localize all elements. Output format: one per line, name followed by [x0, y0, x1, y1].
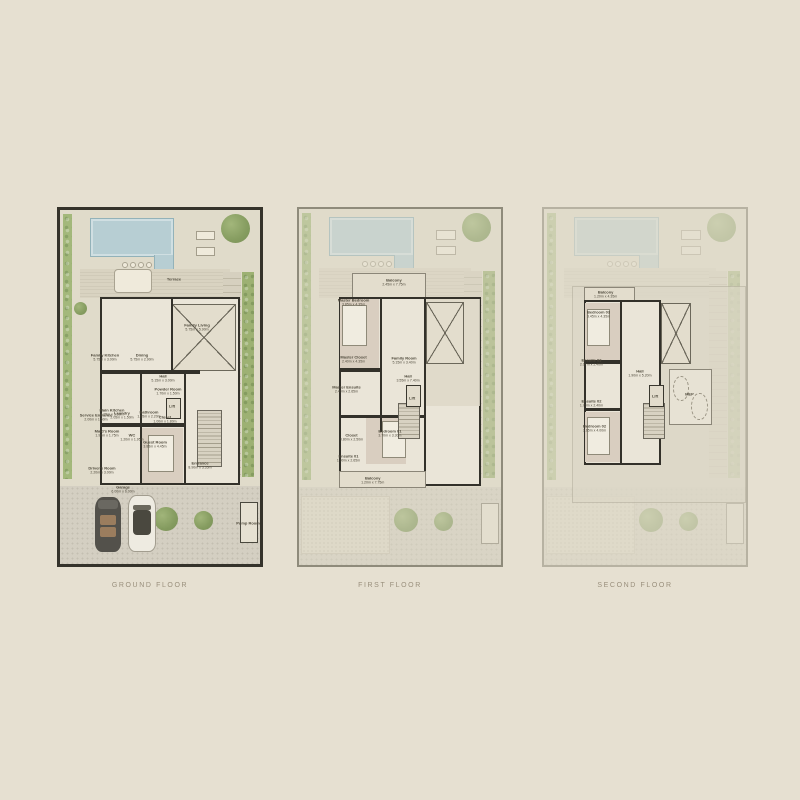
- room-label: WC1.20m x 1.95m: [120, 432, 143, 441]
- room-label: Bathroom1.95m x 2.20m: [137, 409, 160, 418]
- room-label: Bedroom 013.70m x 3.30m: [378, 429, 401, 438]
- room-label: Closet0.80m x 2.50m: [340, 432, 363, 441]
- room-label: Terrace: [167, 277, 181, 282]
- room-label: MEP: [685, 392, 694, 397]
- plot-boundary: Balcony1.20m x 4.35mBedroom 033.45m x 4.…: [542, 207, 748, 567]
- room-label: Laundry2.05m x 1.50m: [110, 411, 133, 420]
- room-label: Family Room5.15m x 3.40m: [391, 356, 416, 365]
- room-labels: Balcony2.45m x 7.75mMaster Bedroom3.85m …: [299, 209, 501, 565]
- room-label: Ensuite 021.70m x 2.40m: [580, 398, 603, 407]
- room-label: Hall3.55m x 7.40m: [397, 374, 420, 383]
- second-floor-plan: Balcony1.20m x 4.35mBedroom 033.45m x 4.…: [542, 207, 748, 567]
- room-label: Master Ensuite2.40m x 2.65m: [332, 384, 360, 393]
- room-label: Balcony1.20m x 4.35m: [594, 290, 617, 299]
- room-label: Hall1.90m x 5.20m: [628, 368, 651, 377]
- room-label: Balcony2.45m x 7.75m: [382, 277, 405, 286]
- room-label: Lift: [409, 395, 415, 400]
- first-floor-plan: Balcony2.45m x 7.75mMaster Bedroom3.85m …: [297, 207, 503, 567]
- ground-floor-plan: TerraceFamily Kitchen5.75m x 3.00mDining…: [57, 207, 263, 567]
- room-label: Driver's Room2.20m x 3.00m: [88, 466, 115, 475]
- ground-floor-caption: GROUND FLOOR: [47, 582, 253, 589]
- second-floor-caption: SECOND FLOOR: [532, 582, 738, 589]
- room-label: Lift: [652, 393, 658, 398]
- room-labels: TerraceFamily Kitchen5.75m x 3.00mDining…: [60, 210, 260, 564]
- room-label: Closet1.00m x 1.80m: [153, 414, 176, 423]
- room-labels: Balcony1.20m x 4.35mBedroom 033.45m x 4.…: [544, 209, 746, 565]
- room-label: Ensuite 032.07m x 2.40m: [580, 357, 603, 366]
- room-label: Dining5.75m x 2.90m: [130, 352, 153, 361]
- room-label: Family Kitchen5.75m x 3.00m: [91, 352, 119, 361]
- room-label: Entrance8.90m x 3.35m: [188, 460, 211, 469]
- room-label: Master Bedroom3.85m x 4.35m: [338, 297, 370, 306]
- room-label: Ensuite 011.90m x 2.65m: [337, 454, 360, 463]
- room-label: Bedroom 023.65m x 4.00m: [583, 423, 606, 432]
- room-label: Main Kitchen3.05m x 3.60m: [100, 407, 125, 416]
- room-label: Pump Room: [236, 520, 260, 525]
- room-label: Lift: [169, 404, 175, 409]
- room-label: Master Closet2.40m x 4.35m: [340, 354, 366, 363]
- plot-boundary: Balcony2.45m x 7.75mMaster Bedroom3.85m …: [297, 207, 503, 567]
- room-label: Bedroom 033.45m x 4.35m: [587, 309, 610, 318]
- room-label: Family Living5.75m x 5.90m: [184, 322, 210, 331]
- room-label: Powder Room1.70m x 1.50m: [155, 386, 182, 395]
- room-label: Maid's Room1.90m x 1.75m: [95, 428, 120, 437]
- room-label: Service Entrance2.00m x 1.50m: [80, 412, 112, 421]
- room-label: Balcony1.20m x 7.75m: [361, 475, 384, 484]
- room-label: Hall5.15m x 3.00m: [151, 374, 174, 383]
- room-label: Guest Room3.85m x 4.45m: [143, 439, 167, 448]
- first-floor-caption: FIRST FLOOR: [287, 582, 493, 589]
- plot-boundary: TerraceFamily Kitchen5.75m x 3.00mDining…: [57, 207, 263, 567]
- room-label: Garage6.00m x 6.00m: [111, 484, 134, 493]
